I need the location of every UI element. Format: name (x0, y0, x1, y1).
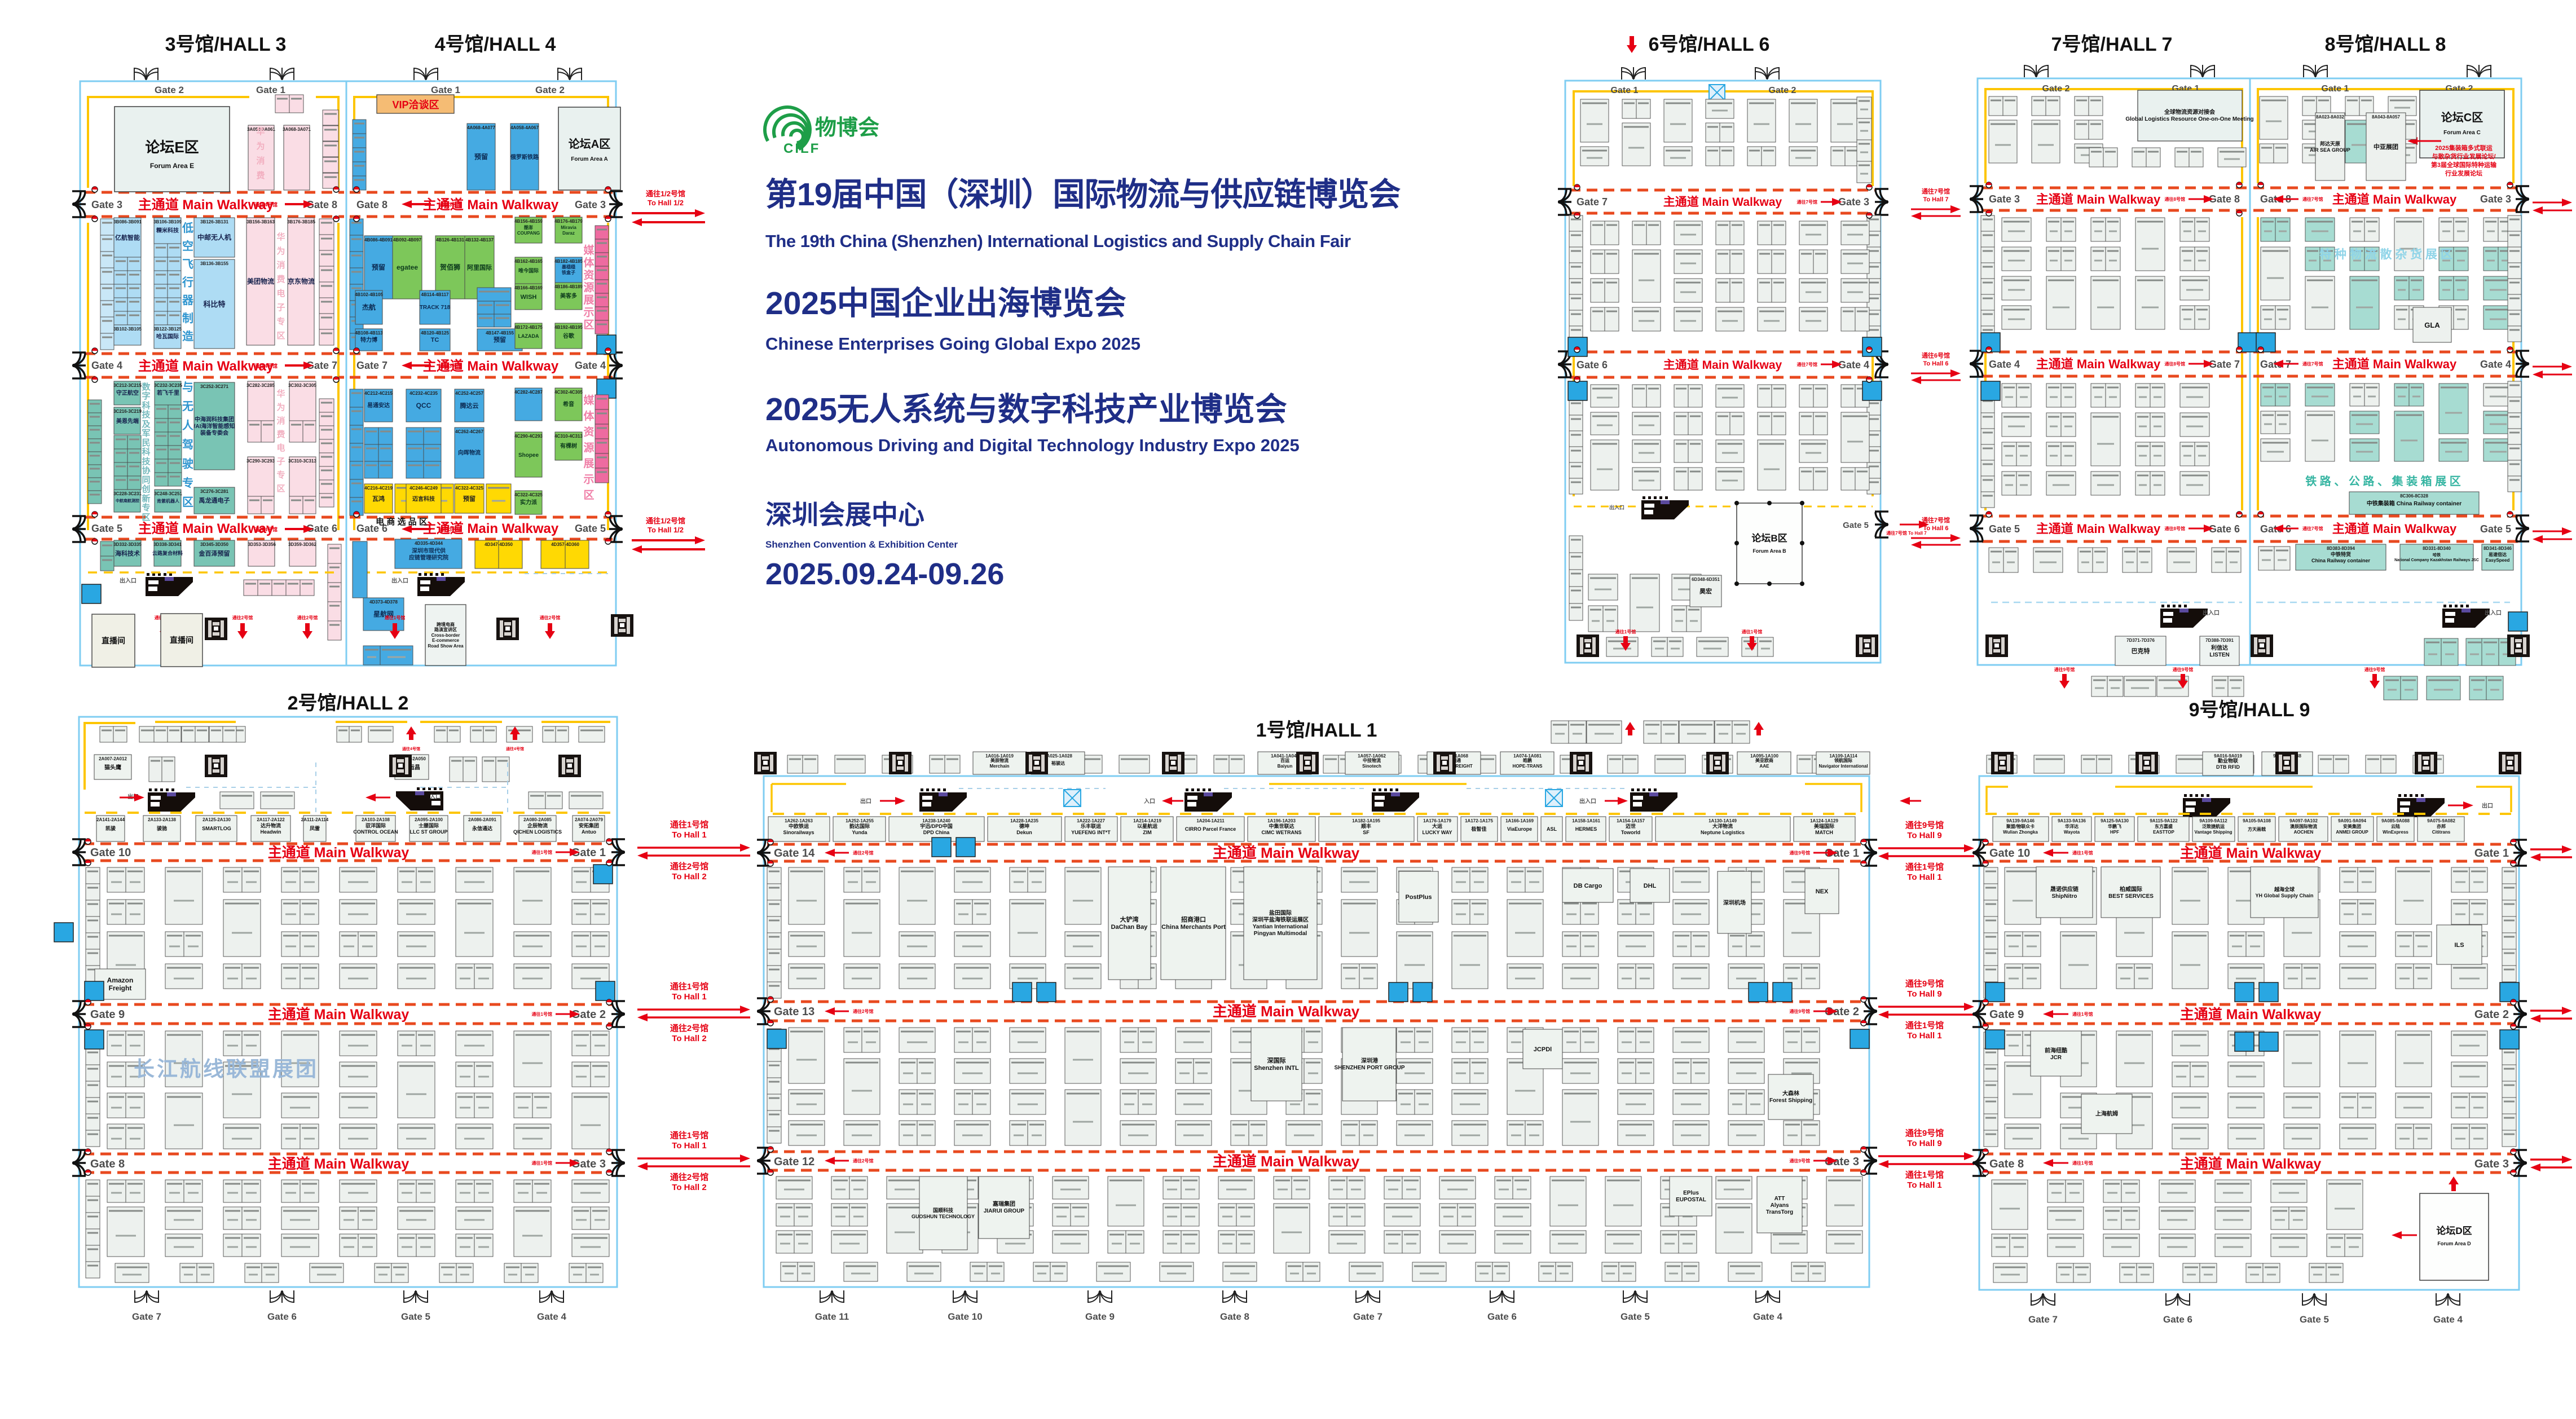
svg-text:特力博: 特力博 (360, 336, 377, 343)
svg-text:1A182-1A195: 1A182-1A195 (1352, 818, 1380, 823)
svg-text:前海纽酷: 前海纽酷 (2045, 1047, 2067, 1054)
svg-text:科比特: 科比特 (203, 300, 225, 309)
svg-text:3B122-3B125: 3B122-3B125 (153, 327, 182, 332)
svg-text:主通道 Main Walkway: 主通道 Main Walkway (2036, 522, 2161, 536)
svg-text:及: 及 (142, 420, 151, 429)
svg-text:军: 军 (142, 429, 150, 438)
svg-text:以星航运: 以星航运 (1137, 823, 1158, 829)
svg-text:中邮无人机: 中邮无人机 (197, 233, 231, 241)
svg-text:区: 区 (276, 331, 285, 341)
svg-text:CILF: CILF (783, 141, 820, 156)
svg-text:主通道 Main Walkway: 主通道 Main Walkway (138, 521, 274, 536)
svg-text:4B092-4B097: 4B092-4B097 (393, 237, 421, 243)
svg-text:区: 区 (182, 496, 193, 509)
svg-text:通往7号馆: 通往7号馆 (2302, 361, 2323, 367)
svg-text:协: 协 (142, 465, 150, 475)
svg-text:Gate 5: Gate 5 (401, 1311, 430, 1322)
svg-text:通往9号馆: 通往9号馆 (1905, 979, 1944, 989)
svg-text:深圳机场: 深圳机场 (1723, 899, 1746, 906)
svg-text:Gate 8: Gate 8 (1989, 1158, 2024, 1170)
svg-text:CONTROL OCEAN: CONTROL OCEAN (353, 829, 398, 835)
svg-text:谷歌: 谷歌 (563, 332, 575, 340)
svg-text:4C302-4C305: 4C302-4C305 (554, 390, 583, 395)
svg-text:物博会: 物博会 (815, 116, 879, 140)
svg-text:铁 路 、 公 路 、 集 装 箱 展 区: 铁 路 、 公 路 、 集 装 箱 展 区 (2305, 474, 2461, 488)
svg-text:To Hall 1: To Hall 1 (1907, 872, 1941, 882)
svg-text:1A214-1A219: 1A214-1A219 (1133, 818, 1161, 823)
svg-text:Forum Area E: Forum Area E (150, 162, 194, 170)
svg-text:JIARUI GROUP: JIARUI GROUP (984, 1208, 1025, 1214)
svg-text:特 种 物 流 散 杂 货 展 区: 特 种 物 流 散 杂 货 展 区 (2319, 248, 2452, 261)
svg-text:9A097-9A102: 9A097-9A102 (2289, 818, 2318, 823)
svg-text:4B172-4B175: 4B172-4B175 (514, 325, 543, 330)
svg-text:通往2号馆: 通往2号馆 (540, 615, 560, 620)
svg-text:3B102-3B105: 3B102-3B105 (113, 327, 142, 332)
svg-text:巴克特: 巴克特 (2132, 647, 2150, 655)
svg-text:领航国际: 领航国际 (1834, 757, 1852, 763)
svg-text:To Hall 6: To Hall 6 (1923, 525, 1948, 532)
svg-text:通往1号馆: 通往1号馆 (1742, 629, 1762, 634)
svg-text:Pingyan Multimodal: Pingyan Multimodal (1254, 931, 1307, 937)
svg-text:AIR SEA GROUP: AIR SEA GROUP (2310, 147, 2350, 153)
svg-text:QICHEN LOGISTICS: QICHEN LOGISTICS (513, 829, 562, 835)
svg-text:Forum Area D: Forum Area D (2437, 1241, 2471, 1246)
svg-text:易通安达: 易通安达 (367, 402, 390, 409)
svg-text:Gate 5: Gate 5 (575, 523, 606, 534)
svg-text:8号馆/HALL 8: 8号馆/HALL 8 (2325, 34, 2446, 55)
svg-text:Chinese Enterprises Going Glob: Chinese Enterprises Going Global Expo 20… (765, 334, 1141, 354)
svg-text:3B176-3B185: 3B176-3B185 (287, 219, 315, 224)
svg-text:Gate 6: Gate 6 (2209, 523, 2240, 535)
svg-text:肯綮机器人: 肯綮机器人 (157, 498, 180, 504)
svg-text:论坛B区: 论坛B区 (1751, 532, 1787, 544)
svg-text:TransTorg: TransTorg (1766, 1209, 1793, 1215)
svg-text:8D383-8D394: 8D383-8D394 (2327, 546, 2355, 551)
svg-text:消: 消 (276, 260, 285, 270)
svg-text:预留: 预留 (463, 495, 475, 503)
svg-text:嘉瑞集团: 嘉瑞集团 (992, 1200, 1015, 1208)
svg-text:Gate 2: Gate 2 (2474, 1008, 2509, 1021)
svg-text:中海润科技集团: 中海润科技集团 (195, 416, 234, 423)
svg-text:媒: 媒 (583, 244, 595, 257)
svg-text:Cross-border: Cross-border (431, 633, 460, 638)
svg-text:哈瓦国际: 哈瓦国际 (156, 333, 179, 340)
svg-text:通往1号馆: 通往1号馆 (2072, 1011, 2093, 1017)
svg-text:4B120-4B125: 4B120-4B125 (421, 330, 449, 336)
svg-text:路演宣讲区: 路演宣讲区 (434, 627, 457, 632)
svg-text:NEX: NEX (1816, 888, 1829, 895)
svg-text:2025集装箱多式联运: 2025集装箱多式联运 (2435, 144, 2492, 152)
svg-text:通往1号馆: 通往1号馆 (670, 819, 708, 830)
svg-text:主通道 Main Walkway: 主通道 Main Walkway (268, 1156, 409, 1172)
svg-text:极智佳: 极智佳 (1471, 826, 1486, 832)
svg-text:WISH: WISH (521, 294, 537, 301)
svg-text:驾: 驾 (182, 438, 193, 451)
svg-text:深圳市现代供: 深圳市现代供 (412, 547, 446, 554)
svg-text:通往1号馆: 通往1号馆 (1615, 629, 1636, 634)
svg-text:3C302-3C305: 3C302-3C305 (288, 383, 316, 388)
svg-text:通往1号馆: 通往1号馆 (2072, 1160, 2093, 1166)
svg-text:华: 华 (276, 232, 285, 242)
svg-text:通往7号馆: 通往7号馆 (1797, 199, 1817, 205)
svg-text:3C248-3C251: 3C248-3C251 (154, 491, 182, 496)
svg-text:空: 空 (182, 239, 193, 253)
svg-text:SHENZHEN PORT GROUP: SHENZHEN PORT GROUP (1334, 1065, 1404, 1071)
svg-text:4D373-4D378: 4D373-4D378 (369, 600, 398, 605)
svg-text:DaChan Bay: DaChan Bay (1111, 924, 1148, 931)
svg-text:To Hall 9: To Hall 9 (1907, 1139, 1941, 1148)
svg-text:Sinotech: Sinotech (1362, 764, 1381, 769)
svg-text:4B132-4B137: 4B132-4B137 (465, 237, 494, 243)
svg-text:资: 资 (583, 268, 594, 281)
svg-text:1A158-1A161: 1A158-1A161 (1572, 818, 1600, 823)
svg-text:WinExpress: WinExpress (2383, 830, 2408, 835)
svg-text:通往7号馆 To Hall 7: 通往7号馆 To Hall 7 (1886, 530, 1927, 536)
svg-text:中铁集装箱 China Railway container: 中铁集装箱 China Railway container (2367, 500, 2461, 507)
svg-text:数: 数 (142, 382, 151, 392)
svg-text:CIRRO Parcel France: CIRRO Parcel France (1185, 826, 1236, 832)
svg-text:Gate 14: Gate 14 (774, 847, 815, 860)
svg-text:深圳平盐海铁联运展区: 深圳平盐海铁联运展区 (1252, 916, 1309, 923)
svg-text:通往1号馆: 通往1号馆 (532, 1160, 552, 1166)
svg-text:希音: 希音 (562, 400, 574, 408)
svg-text:通往3号馆: 通往3号馆 (439, 526, 462, 532)
svg-text:2A103-2A108: 2A103-2A108 (362, 817, 390, 822)
svg-text:深圳港: 深圳港 (1361, 1057, 1379, 1064)
svg-text:Gate 2: Gate 2 (2042, 84, 2070, 94)
svg-text:亿航智能: 亿航智能 (115, 233, 140, 241)
svg-text:4A068-4A077: 4A068-4A077 (467, 125, 495, 130)
svg-text:National Company Kazakhstan Ra: National Company Kazakhstan Railways JSC (2394, 558, 2479, 562)
svg-text:2A095-2A100: 2A095-2A100 (415, 817, 443, 822)
svg-text:Gate 7: Gate 7 (2209, 359, 2240, 370)
svg-text:2A117-2A122: 2A117-2A122 (257, 817, 285, 822)
svg-text:科: 科 (142, 400, 150, 411)
svg-text:美恩先端: 美恩先端 (116, 417, 139, 425)
svg-text:1A262-1A263: 1A262-1A263 (785, 818, 813, 823)
svg-text:3C252-3C271: 3C252-3C271 (200, 384, 228, 389)
svg-text:源: 源 (583, 441, 594, 454)
svg-text:4C252-4C257: 4C252-4C257 (455, 391, 483, 396)
svg-text:无: 无 (182, 400, 193, 413)
svg-text:Gate 4: Gate 4 (575, 360, 606, 371)
svg-text:Neptune Logistics: Neptune Logistics (1701, 830, 1745, 835)
svg-text:JCR: JCR (2050, 1055, 2062, 1061)
svg-text:跨境电商: 跨境电商 (437, 622, 455, 627)
svg-text:2A133-2A138: 2A133-2A138 (148, 817, 176, 822)
svg-text:3D332-3D335: 3D332-3D335 (113, 542, 142, 547)
svg-text:禹龙通电子: 禹龙通电子 (199, 496, 230, 504)
svg-text:通往9号馆: 通往9号馆 (1905, 820, 1944, 830)
svg-text:3B086-3B091: 3B086-3B091 (113, 219, 142, 224)
svg-text:守正航空: 守正航空 (116, 389, 139, 396)
svg-text:宇迅/DPD中国: 宇迅/DPD中国 (920, 823, 953, 829)
svg-text:专: 专 (182, 476, 193, 490)
svg-text:通往9号馆: 通往9号馆 (1790, 1158, 1810, 1164)
svg-text:入口: 入口 (430, 794, 441, 800)
svg-text:俄罗斯铁路: 俄罗斯铁路 (510, 153, 539, 161)
svg-text:通往4号馆: 通往4号馆 (402, 746, 420, 751)
svg-text:GLA: GLA (2424, 321, 2440, 329)
svg-text:Gate 3: Gate 3 (1838, 196, 1869, 208)
svg-text:SMARTLOG: SMARTLOG (202, 826, 231, 831)
svg-text:9A139-9A146: 9A139-9A146 (2006, 818, 2035, 823)
svg-text:Forum Area B: Forum Area B (1752, 548, 1786, 554)
svg-text:COUPANG: COUPANG (517, 231, 540, 236)
svg-text:Gate 9: Gate 9 (90, 1008, 125, 1021)
svg-text:主通道 Main Walkway: 主通道 Main Walkway (2036, 357, 2161, 371)
svg-text:Gate 10: Gate 10 (90, 847, 131, 859)
svg-text:皓鹏: 皓鹏 (1523, 757, 1532, 763)
svg-text:Gate 3: Gate 3 (1989, 193, 2020, 205)
svg-text:预留: 预留 (494, 336, 506, 343)
svg-text:SF: SF (1363, 830, 1370, 835)
svg-text:裕骏达: 裕骏达 (1051, 760, 1065, 766)
svg-text:美辰物流: 美辰物流 (990, 757, 1009, 763)
svg-text:HPF: HPF (2110, 830, 2119, 835)
svg-text:Gate 5: Gate 5 (2480, 523, 2511, 535)
svg-text:6号馆/HALL 6: 6号馆/HALL 6 (1649, 34, 1770, 55)
svg-text:4B192-4B195: 4B192-4B195 (554, 325, 583, 330)
svg-text:4B114-4B117: 4B114-4B117 (421, 292, 449, 297)
svg-text:1A124-1A129: 1A124-1A129 (1810, 818, 1838, 823)
svg-text:1A204-1A211: 1A204-1A211 (1196, 818, 1225, 823)
svg-text:通往2号馆: 通往2号馆 (853, 850, 873, 856)
svg-text:电: 电 (276, 443, 285, 453)
svg-text:Yunda: Yunda (852, 830, 868, 835)
svg-text:通往3号馆: 通往3号馆 (439, 201, 462, 208)
svg-text:1A228-1A235: 1A228-1A235 (1010, 818, 1038, 823)
svg-text:3C232-3C235: 3C232-3C235 (154, 383, 182, 388)
svg-text:3A068-3A071: 3A068-3A071 (283, 127, 311, 132)
svg-text:华: 华 (256, 126, 265, 136)
svg-text:Gate 1: Gate 1 (431, 85, 460, 95)
svg-text:1A172-1A175: 1A172-1A175 (1465, 818, 1493, 823)
svg-text:8D331-8D340: 8D331-8D340 (2423, 546, 2451, 551)
svg-text:HOPE-TRANS: HOPE-TRANS (1513, 764, 1543, 769)
svg-text:Gate 2: Gate 2 (155, 85, 184, 95)
svg-text:贺佰狮: 贺佰狮 (439, 263, 460, 271)
svg-text:人: 人 (182, 419, 194, 432)
svg-text:大铲湾: 大铲湾 (1120, 915, 1139, 923)
svg-text:技: 技 (142, 456, 151, 466)
svg-text:海科技术: 海科技术 (115, 549, 140, 557)
svg-text:ANMEI GROUP: ANMEI GROUP (2336, 830, 2368, 835)
svg-text:Cititrans: Cititrans (2432, 830, 2451, 835)
svg-text:通往4号馆: 通往4号馆 (254, 363, 278, 369)
svg-text:ASL: ASL (1547, 826, 1557, 832)
svg-text:Navigator International: Navigator International (1818, 764, 1868, 769)
svg-text:Gate 8: Gate 8 (356, 199, 387, 210)
svg-text:有棵树: 有棵树 (560, 442, 577, 450)
svg-text:杰航: 杰航 (362, 303, 376, 311)
svg-text:为: 为 (276, 246, 285, 256)
svg-text:9A105-9A108: 9A105-9A108 (2243, 818, 2271, 823)
svg-text:Gate 11: Gate 11 (815, 1311, 849, 1322)
svg-text:egatee: egatee (397, 263, 418, 271)
svg-text:8A023-8A032: 8A023-8A032 (2316, 114, 2344, 120)
svg-text:3B126-3B131: 3B126-3B131 (200, 219, 228, 224)
svg-text:长江航线联盟展团: 长江航线联盟展团 (134, 1057, 319, 1081)
svg-text:通往1号馆: 通往1号馆 (1905, 1170, 1944, 1180)
svg-text:通往2号馆: 通往2号馆 (670, 1023, 708, 1033)
svg-text:主通道 Main Walkway: 主通道 Main Walkway (2332, 522, 2457, 536)
svg-text:AAE: AAE (1760, 764, 1770, 769)
svg-text:8C306-8C328: 8C306-8C328 (2400, 493, 2428, 499)
svg-text:通往1/2号馆: 通往1/2号馆 (646, 190, 685, 198)
svg-text:通往1号馆: 通往1号馆 (670, 981, 708, 991)
svg-text:3C282-3C285: 3C282-3C285 (246, 383, 275, 388)
svg-text:DB Cargo: DB Cargo (1574, 883, 1602, 889)
svg-text:4C322-4C325: 4C322-4C325 (514, 492, 543, 497)
svg-text:民: 民 (142, 438, 150, 448)
svg-text:通往7号馆: 通往7号馆 (2302, 526, 2323, 531)
svg-text:Gate 6: Gate 6 (2163, 1314, 2192, 1325)
svg-text:方天画戟: 方天画戟 (2248, 826, 2266, 832)
svg-text:专: 专 (276, 470, 285, 480)
svg-text:Gate 1: Gate 1 (1611, 86, 1639, 95)
svg-text:4B176-4B179: 4B176-4B179 (554, 219, 583, 224)
svg-text:通往8号馆: 通往8号馆 (2165, 196, 2185, 202)
svg-text:主通道 Main Walkway: 主通道 Main Walkway (1663, 195, 1782, 209)
svg-text:深国际: 深国际 (1267, 1056, 1286, 1064)
svg-text:1A252-1A255: 1A252-1A255 (846, 818, 874, 823)
svg-text:Wayota: Wayota (2064, 830, 2080, 835)
svg-text:Antuo: Antuo (582, 829, 596, 835)
svg-text:字: 字 (142, 391, 150, 401)
svg-text:9A075-9A082: 9A075-9A082 (2427, 818, 2455, 823)
svg-text:TRACK 718: TRACK 718 (420, 305, 451, 311)
svg-text:通往2号馆: 通往2号馆 (232, 615, 253, 620)
svg-text:7D371-7D376: 7D371-7D376 (2126, 638, 2155, 643)
svg-text:GUOSHUN TECHNOLOGY: GUOSHUN TECHNOLOGY (911, 1214, 975, 1219)
svg-text:Gate 9: Gate 9 (1989, 1008, 2024, 1021)
svg-text:与散杂货行业发展论坛/: 与散杂货行业发展论坛/ (2432, 152, 2495, 160)
svg-text:泛致捷航运: 泛致捷航运 (2202, 823, 2225, 829)
svg-text:Gate 1: Gate 1 (2322, 84, 2349, 94)
svg-text:东方嘉盛: 东方嘉盛 (2155, 823, 2173, 829)
svg-text:1A238-1A240: 1A238-1A240 (922, 818, 950, 823)
svg-text:入口: 入口 (1144, 798, 1155, 805)
svg-text:9A091-9A094: 9A091-9A094 (2338, 818, 2366, 823)
svg-text:示: 示 (583, 307, 594, 319)
svg-text:通往6号馆: 通往6号馆 (1922, 351, 1950, 359)
svg-text:出入口: 出入口 (2203, 609, 2220, 616)
svg-text:越海全球: 越海全球 (2274, 886, 2295, 892)
svg-text:4C310-4C313: 4C310-4C313 (554, 434, 583, 439)
svg-text:向晖物流: 向晖物流 (458, 449, 481, 456)
svg-text:通往1号馆: 通往1号馆 (670, 1130, 708, 1140)
svg-text:铁盒子: 铁盒子 (562, 270, 575, 275)
svg-text:Miravia: Miravia (561, 225, 576, 230)
svg-text:Gate 10: Gate 10 (948, 1311, 982, 1322)
svg-text:Gate 3: Gate 3 (575, 199, 606, 210)
svg-text:Gate 4: Gate 4 (91, 360, 122, 371)
svg-text:电: 电 (276, 288, 285, 298)
svg-text:墨穏穏: 墨穏穏 (562, 264, 575, 270)
svg-text:猫头鹰: 猫头鹰 (104, 764, 121, 771)
svg-text:CIMC WETRANS: CIMC WETRANS (1262, 830, 1302, 835)
svg-text:4C232-4C235: 4C232-4C235 (409, 391, 438, 396)
svg-text:ILS: ILS (2454, 942, 2464, 949)
svg-text:源: 源 (583, 281, 594, 294)
svg-text:器: 器 (182, 294, 194, 307)
svg-text:9A085-9A088: 9A085-9A088 (2381, 818, 2410, 823)
svg-text:韵达国际: 韵达国际 (849, 823, 870, 829)
svg-text:实力派: 实力派 (520, 499, 538, 506)
svg-text:EASTTOP: EASTTOP (2153, 830, 2174, 835)
svg-text:论坛C区: 论坛C区 (2441, 111, 2483, 124)
svg-text:通往7号馆: 通往7号馆 (1922, 516, 1950, 524)
svg-text:2025无人系统与数字科技产业博览会: 2025无人系统与数字科技产业博览会 (765, 391, 1287, 428)
svg-text:9A109-9A112: 9A109-9A112 (2199, 818, 2227, 823)
svg-text:To Hall 1/2: To Hall 1/2 (648, 526, 684, 534)
svg-text:1A222-1A227: 1A222-1A227 (1077, 818, 1105, 823)
svg-text:To Hall 1: To Hall 1 (1907, 1180, 1941, 1190)
svg-text:ViaEurope: ViaEurope (1507, 826, 1532, 832)
svg-text:华: 华 (276, 389, 285, 399)
svg-text:主通道 Main Walkway: 主通道 Main Walkway (2332, 357, 2457, 371)
svg-text:聚盟/物联众卡: 聚盟/物联众卡 (2006, 823, 2035, 829)
svg-text:6D348-6D351: 6D348-6D351 (1692, 577, 1720, 582)
svg-text:驶: 驶 (182, 457, 193, 470)
svg-text:酷澎: 酷澎 (524, 224, 533, 230)
svg-text:应链管理研究院: 应链管理研究院 (409, 554, 448, 561)
svg-text:展: 展 (583, 294, 594, 306)
svg-text:云陆: 云陆 (2391, 823, 2400, 829)
svg-text:3C276-3C281: 3C276-3C281 (200, 489, 228, 494)
svg-text:直播间: 直播间 (170, 636, 193, 645)
svg-text:Gate 7: Gate 7 (356, 360, 387, 371)
svg-text:To Hall 7: To Hall 7 (1923, 196, 1948, 203)
svg-text:大森林: 大森林 (1782, 1090, 1800, 1097)
svg-text:4B156-4B159: 4B156-4B159 (514, 219, 543, 224)
svg-text:Gate 3: Gate 3 (2474, 1158, 2509, 1170)
svg-text:通往1/2号馆: 通往1/2号馆 (646, 517, 685, 525)
svg-text:通往1号馆: 通往1号馆 (1905, 862, 1944, 872)
svg-text:行业发展论坛: 行业发展论坛 (2445, 169, 2482, 177)
svg-text:HERMES: HERMES (1575, 826, 1597, 832)
svg-text:3D338-3D341: 3D338-3D341 (153, 542, 182, 547)
svg-text:Gate 4: Gate 4 (2433, 1314, 2463, 1325)
svg-text:区: 区 (583, 319, 594, 331)
svg-text:专: 专 (142, 503, 150, 513)
svg-text:YH Global Supply Chain: YH Global Supply Chain (2255, 893, 2313, 898)
svg-text:BEST SERVICES: BEST SERVICES (2108, 893, 2154, 900)
svg-text:4A058-4A067: 4A058-4A067 (510, 125, 539, 130)
svg-text:PostPlus: PostPlus (1405, 894, 1432, 901)
svg-text:Gate 2: Gate 2 (1769, 86, 1796, 95)
svg-text:区: 区 (276, 484, 285, 493)
svg-text:百运: 百运 (1280, 758, 1289, 763)
svg-text:通往4号馆: 通往4号馆 (506, 746, 524, 751)
svg-text:美客多: 美客多 (560, 292, 577, 299)
svg-text:科: 科 (142, 447, 150, 457)
svg-text:2A074-2A079: 2A074-2A079 (575, 817, 603, 822)
svg-text:To Hall 6: To Hall 6 (1923, 360, 1948, 367)
svg-text:主通道 Main Walkway: 主通道 Main Walkway (2180, 1156, 2322, 1172)
svg-text:预留: 预留 (372, 263, 385, 271)
svg-text:To Hall 2: To Hall 2 (672, 1183, 706, 1192)
svg-text:Gate 7: Gate 7 (2028, 1314, 2058, 1325)
svg-text:迈言科技: 迈言科技 (412, 495, 435, 503)
svg-text:直播间: 直播间 (102, 636, 125, 645)
svg-text:China Railway container: China Railway container (2311, 558, 2371, 563)
svg-text:德坤: 德坤 (1019, 823, 1029, 829)
svg-text:VIP洽谈区: VIP洽谈区 (392, 99, 439, 111)
svg-text:主通道 Main Walkway: 主通道 Main Walkway (268, 844, 409, 861)
svg-text:AOCHEN: AOCHEN (2294, 830, 2314, 835)
